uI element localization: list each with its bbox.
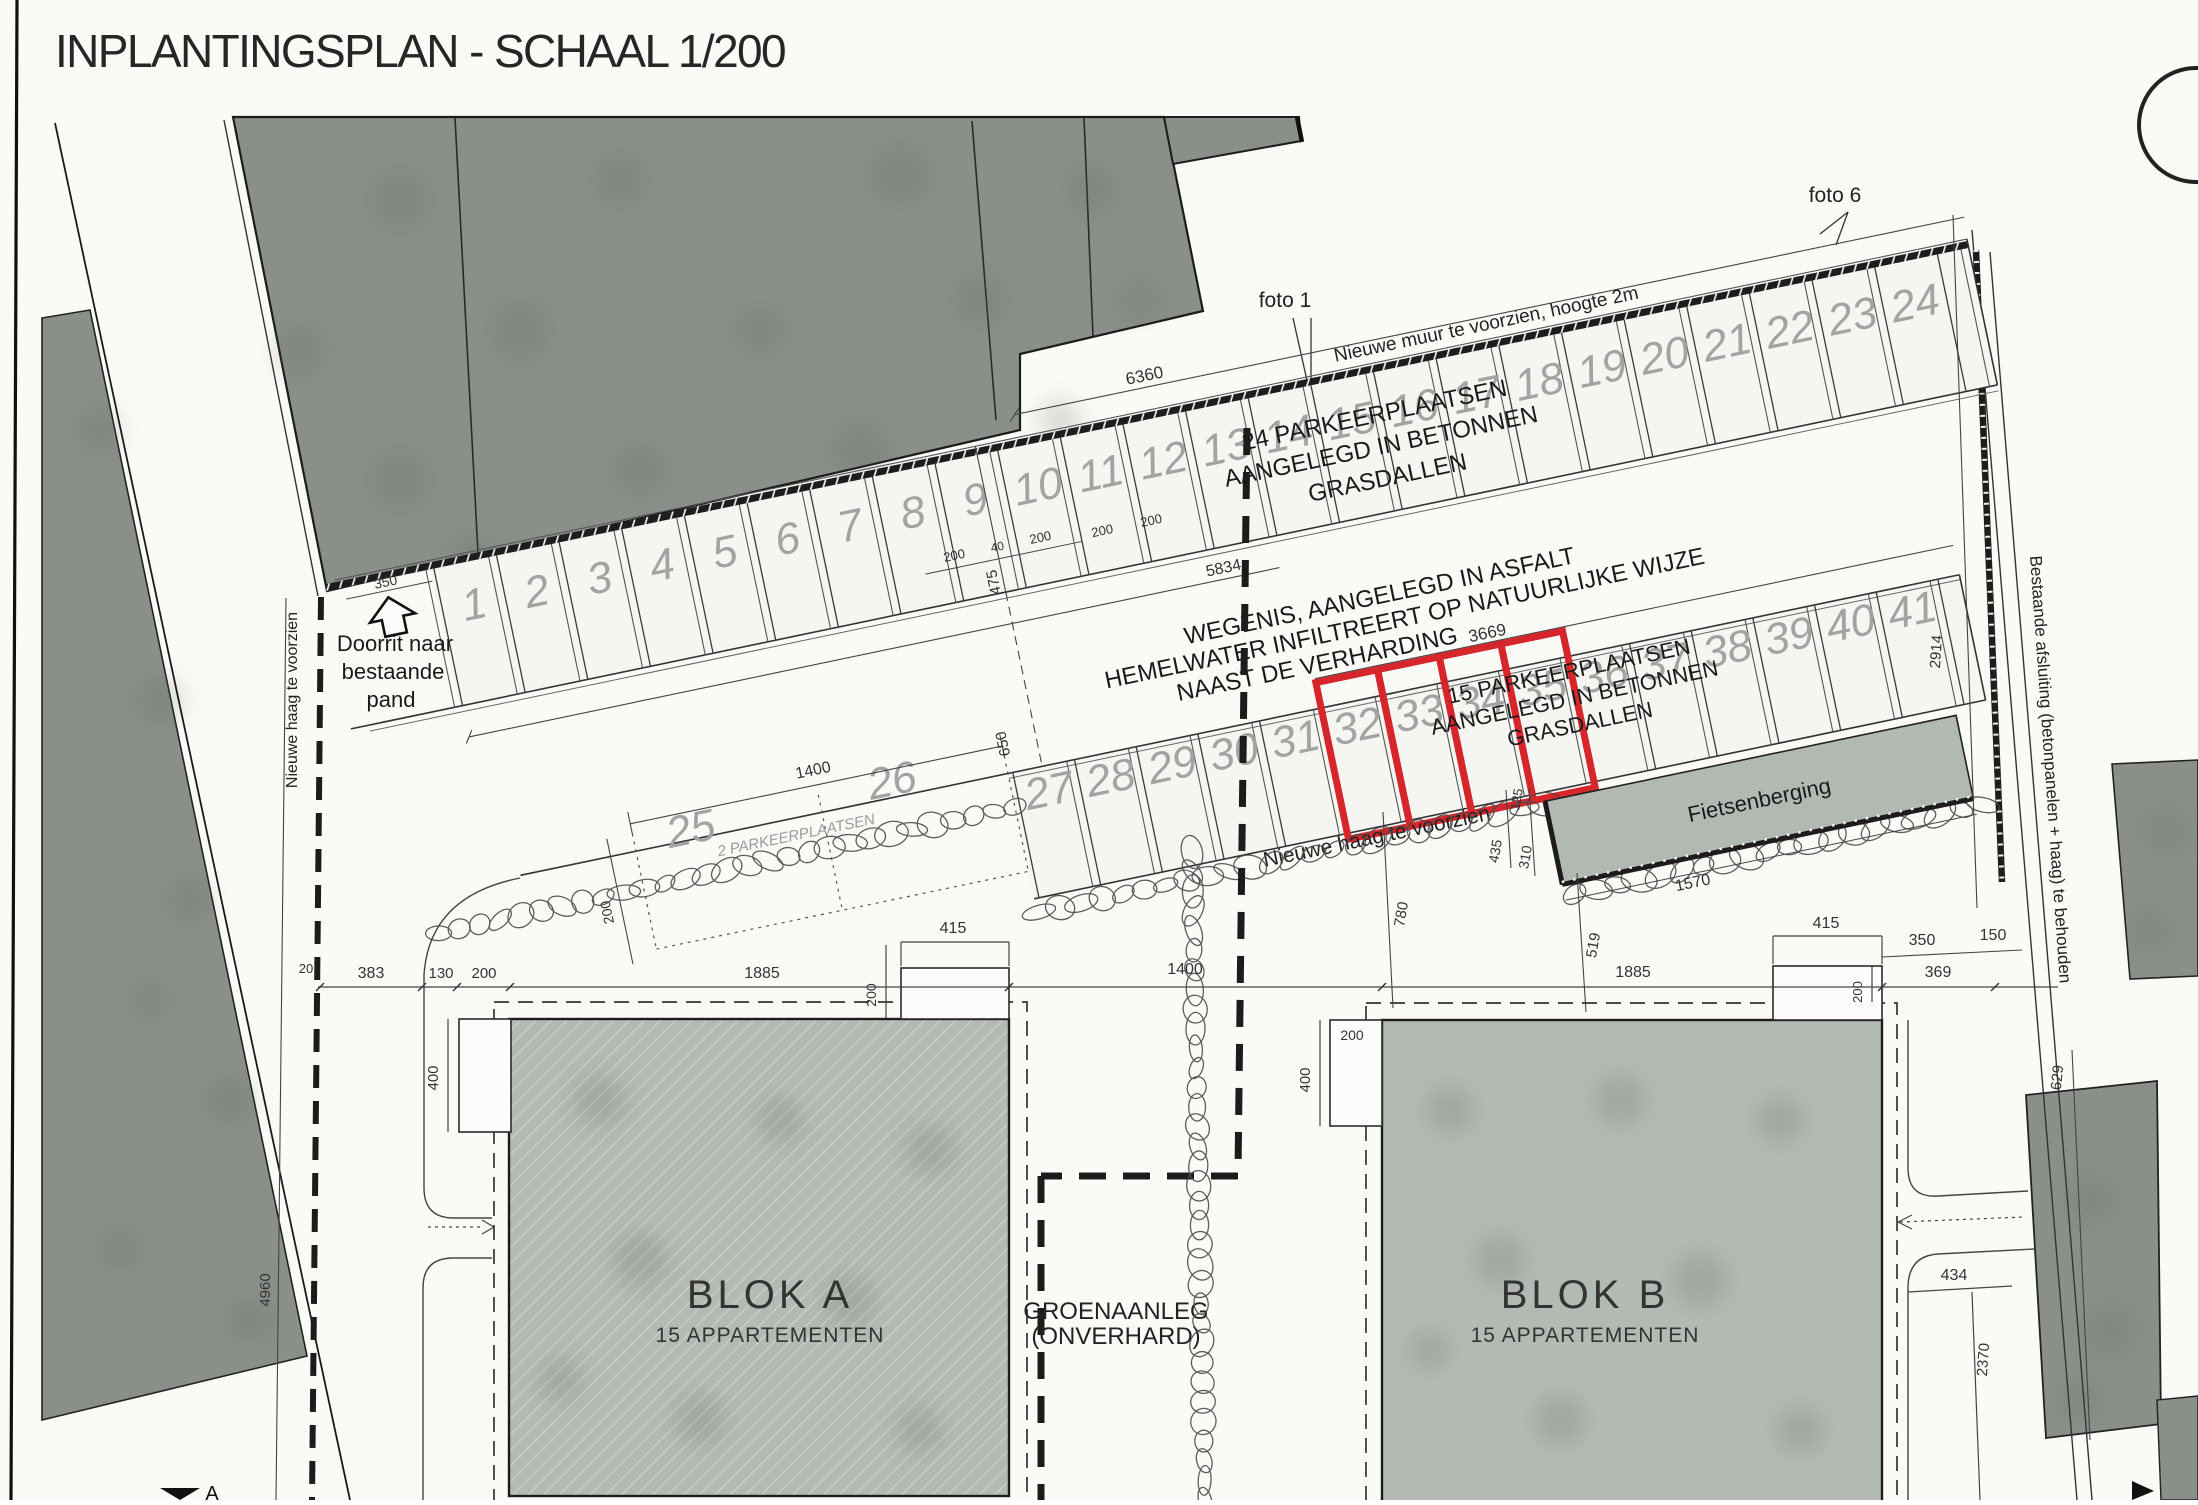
svg-text:415: 415: [940, 920, 967, 937]
svg-text:41: 41: [1883, 582, 1941, 640]
svg-text:30: 30: [1205, 723, 1263, 781]
svg-text:20: 20: [299, 961, 313, 976]
svg-text:INPLANTINGSPLAN - SCHAAL 1/200: INPLANTINGSPLAN - SCHAAL 1/200: [55, 25, 785, 77]
svg-text:2914: 2914: [1927, 634, 1946, 668]
svg-text:foto 1: foto 1: [1259, 289, 1312, 312]
svg-text:434: 434: [1941, 1267, 1968, 1284]
svg-text:A: A: [205, 1483, 219, 1500]
svg-text:26: 26: [862, 752, 921, 810]
svg-text:18: 18: [1510, 353, 1568, 411]
svg-text:200: 200: [1850, 981, 1865, 1003]
svg-text:130: 130: [428, 965, 453, 982]
svg-text:BLOK B: BLOK B: [1501, 1273, 1670, 1317]
svg-text:350: 350: [1909, 932, 1936, 949]
svg-text:25: 25: [661, 800, 720, 858]
svg-text:150: 150: [1980, 927, 2007, 944]
svg-text:24: 24: [1885, 275, 1944, 333]
svg-text:400: 400: [1297, 1067, 1314, 1092]
svg-text:415: 415: [1813, 915, 1840, 932]
svg-text:28: 28: [1081, 749, 1140, 807]
svg-text:4960: 4960: [257, 1273, 274, 1306]
svg-text:19: 19: [1573, 340, 1631, 398]
svg-text:369: 369: [1925, 964, 1952, 981]
svg-text:GROENAANLEG: GROENAANLEG: [1023, 1298, 1208, 1325]
svg-text:29: 29: [1142, 736, 1201, 794]
svg-text:39: 39: [1760, 607, 1818, 665]
svg-text:383: 383: [358, 965, 385, 982]
svg-text:10: 10: [1009, 458, 1067, 516]
svg-text:32: 32: [1328, 698, 1386, 756]
svg-text:20: 20: [1634, 327, 1693, 385]
svg-text:foto 6: foto 6: [1809, 184, 1862, 207]
svg-text:200: 200: [1340, 1027, 1364, 1043]
svg-text:15 APPARTEMENTEN: 15 APPARTEMENTEN: [1471, 1324, 1700, 1347]
svg-text:21: 21: [1697, 314, 1756, 372]
svg-text:2370: 2370: [1974, 1342, 1993, 1376]
svg-text:400: 400: [425, 1065, 442, 1090]
svg-text:Nieuwe haag te voorzien: Nieuwe haag te voorzien: [284, 612, 301, 788]
svg-text:(ONVERHARD): (ONVERHARD): [1031, 1323, 1200, 1350]
svg-text:40: 40: [1822, 594, 1880, 652]
svg-text:23: 23: [1822, 288, 1881, 346]
svg-text:31: 31: [1267, 710, 1325, 768]
svg-text:22: 22: [1760, 301, 1819, 359]
svg-text:200: 200: [471, 965, 496, 982]
svg-text:12: 12: [1134, 432, 1192, 490]
svg-text:1885: 1885: [744, 965, 780, 982]
svg-text:pand: pand: [367, 687, 416, 712]
svg-text:bestaande: bestaande: [342, 659, 445, 684]
svg-text:BLOK A: BLOK A: [687, 1273, 853, 1317]
svg-text:15 APPARTEMENTEN: 15 APPARTEMENTEN: [656, 1324, 885, 1347]
svg-text:1885: 1885: [1615, 964, 1651, 981]
